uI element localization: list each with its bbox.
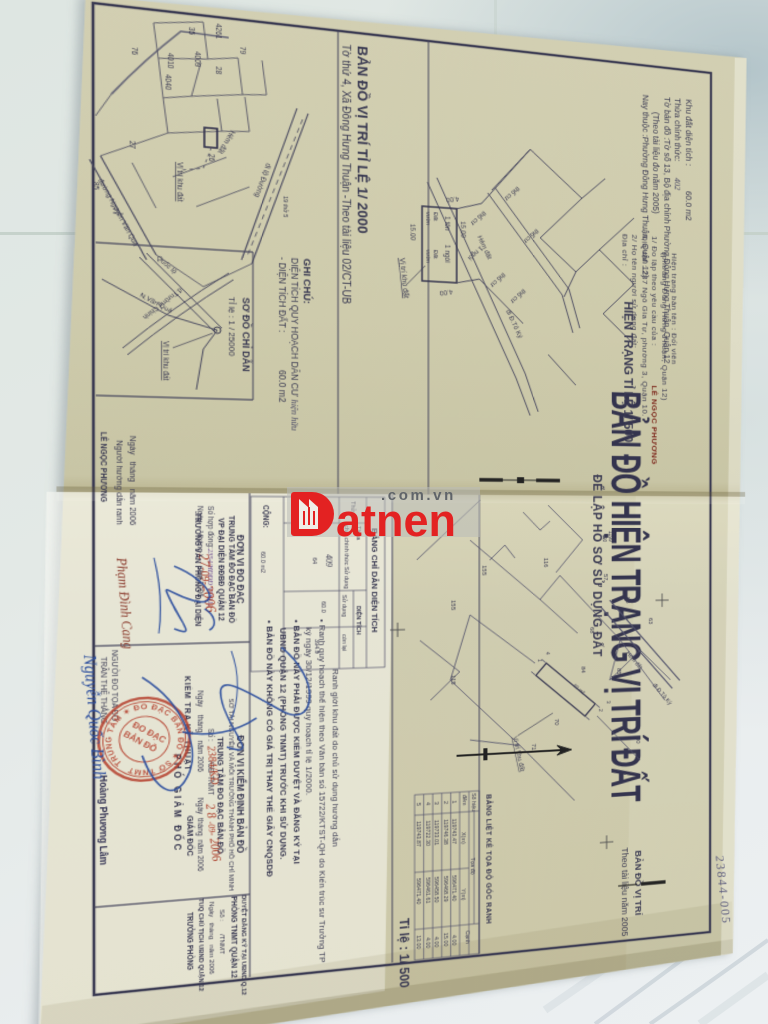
svg-text:atnen: atnen (336, 495, 456, 546)
svg-text:Nguyễn Quốc Bình: Nguyễn Quốc Bình (79, 653, 108, 781)
svg-text:Phạm Đình Cang: Phạm Đình Cang (113, 556, 137, 650)
